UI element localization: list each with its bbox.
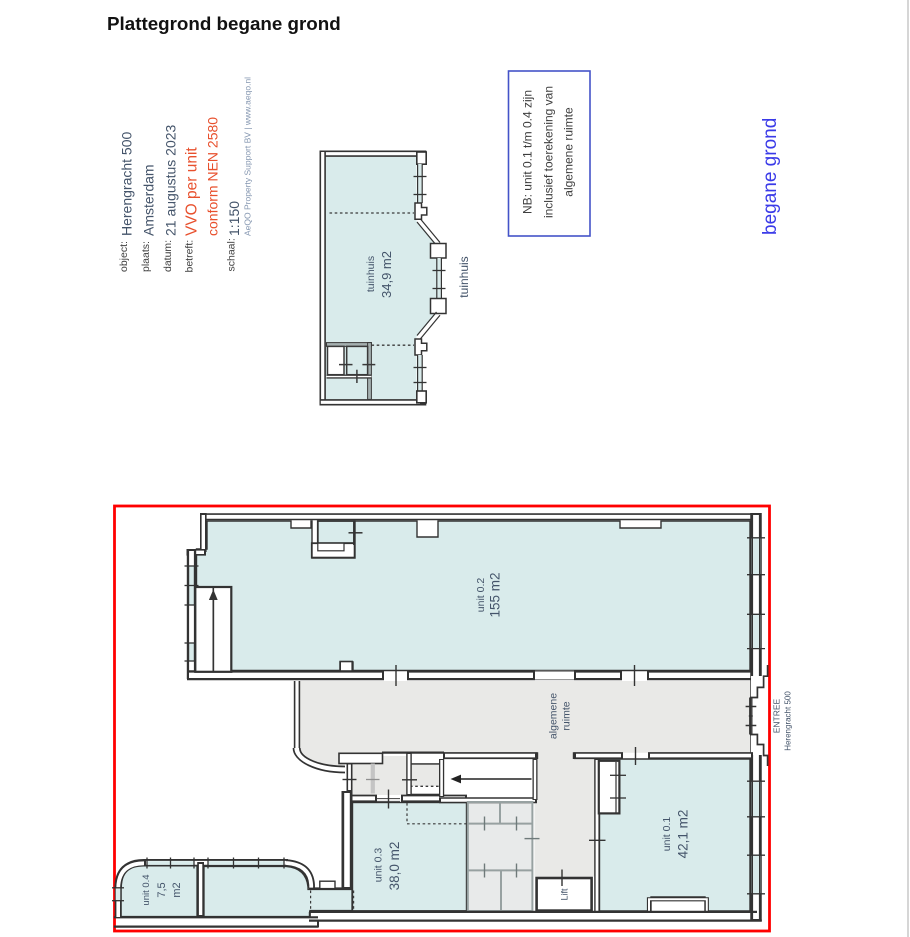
svg-text:inclusief toerekening van: inclusief toerekening van [542, 86, 556, 218]
svg-text:21 augustus 2023: 21 augustus 2023 [163, 124, 179, 236]
svg-text:object:: object: [118, 241, 130, 272]
svg-text:plaats:: plaats: [140, 241, 152, 272]
svg-text:ENTREE: ENTREE [772, 698, 782, 733]
svg-text:conform NEN 2580: conform NEN 2580 [205, 117, 221, 236]
svg-text:begane grond: begane grond [760, 118, 781, 235]
svg-text:algemene ruimte: algemene ruimte [562, 107, 576, 197]
svg-text:155 m2: 155 m2 [488, 572, 503, 617]
svg-text:34,9 m2: 34,9 m2 [379, 251, 394, 298]
svg-text:Lift: Lift [560, 888, 570, 901]
svg-text:1:150: 1:150 [226, 201, 242, 236]
svg-text:AeQO Property Support BV | www: AeQO Property Support BV | www.aeqo.nl [243, 77, 253, 236]
svg-text:m2: m2 [171, 882, 183, 897]
svg-text:unit 0.1: unit 0.1 [661, 817, 673, 852]
svg-text:datum:: datum: [162, 240, 174, 272]
svg-text:Plattegrond begane grond: Plattegrond begane grond [107, 13, 341, 34]
svg-text:42,1 m2: 42,1 m2 [676, 810, 691, 859]
svg-text:unit 0.2: unit 0.2 [475, 578, 487, 613]
svg-text:7,5: 7,5 [156, 882, 168, 897]
svg-text:ruimte: ruimte [561, 701, 573, 730]
svg-text:tuinhuis: tuinhuis [457, 256, 471, 297]
svg-text:Herengracht 500: Herengracht 500 [784, 691, 793, 751]
svg-text:unit 0.3: unit 0.3 [373, 848, 385, 883]
svg-text:38,0 m2: 38,0 m2 [387, 842, 402, 891]
svg-text:Amsterdam: Amsterdam [141, 164, 157, 236]
svg-text:NB: unit 0.1 t/m 0.4 zijn: NB: unit 0.1 t/m 0.4 zijn [521, 90, 535, 214]
svg-text:betreft:: betreft: [184, 240, 196, 273]
svg-text:VVO per unit: VVO per unit [184, 147, 201, 236]
svg-text:algemene: algemene [548, 693, 560, 739]
svg-text:tuinhuis: tuinhuis [365, 256, 377, 292]
svg-text:Herengracht 500: Herengracht 500 [119, 131, 135, 236]
svg-text:schaal:: schaal: [226, 238, 238, 271]
svg-text:unit 0.4: unit 0.4 [141, 874, 152, 905]
